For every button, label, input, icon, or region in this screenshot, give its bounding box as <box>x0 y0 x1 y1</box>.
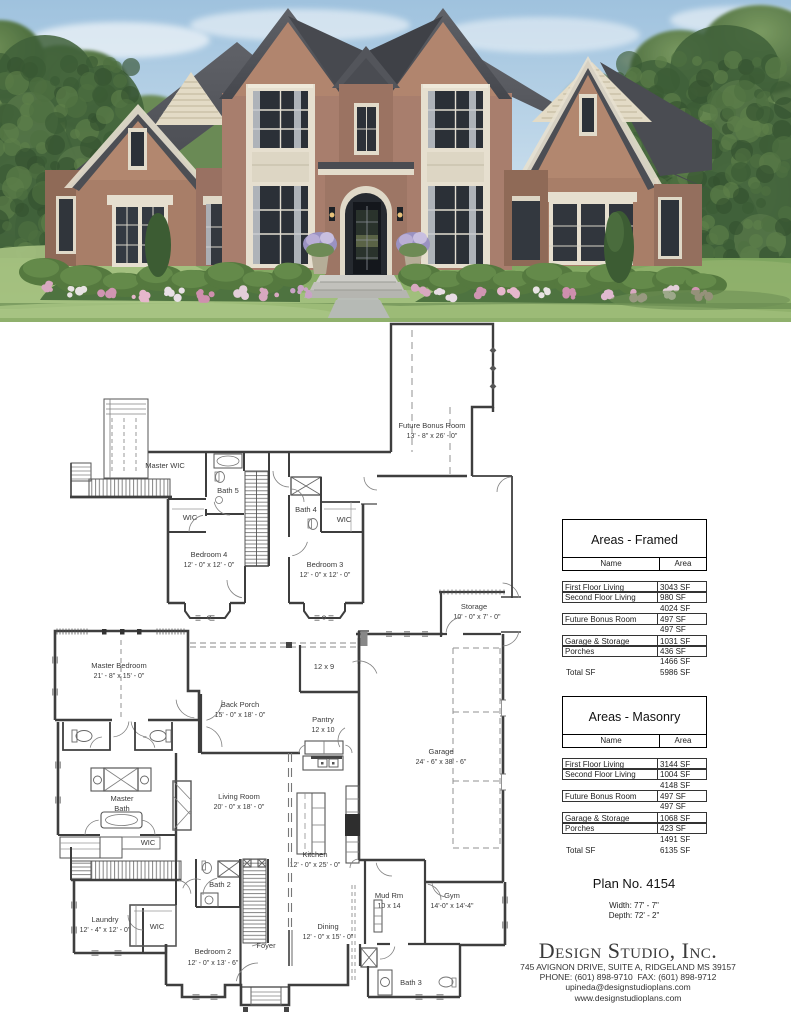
svg-text:12 x 10: 12 x 10 <box>312 727 335 734</box>
svg-text:12' - 0" x 12' - 0": 12' - 0" x 12' - 0" <box>184 562 235 569</box>
svg-text:12' - 0" x 13' - 6": 12' - 0" x 13' - 6" <box>188 960 239 967</box>
svg-text:Gym: Gym <box>444 891 460 900</box>
svg-text:12' - 4" x 12' - 0": 12' - 4" x 12' - 0" <box>80 927 131 934</box>
svg-text:24' - 6" x 38' - 6": 24' - 6" x 38' - 6" <box>416 759 467 766</box>
svg-text:12 x 9: 12 x 9 <box>314 662 334 671</box>
svg-text:14'-0" x 14'-4": 14'-0" x 14'-4" <box>430 903 474 910</box>
svg-text:Master Bedroom: Master Bedroom <box>91 661 146 670</box>
svg-text:12' - 0" x 15' - 0": 12' - 0" x 15' - 0" <box>303 934 354 941</box>
svg-text:Master: Master <box>111 794 134 803</box>
svg-text:15' - 0" x 18' - 0": 15' - 0" x 18' - 0" <box>215 712 266 719</box>
svg-text:Bedroom 2: Bedroom 2 <box>195 947 232 956</box>
svg-text:Foyer: Foyer <box>256 941 276 950</box>
svg-text:21' - 8" x 15' - 0": 21' - 8" x 15' - 0" <box>94 673 145 680</box>
svg-text:Bedroom 3: Bedroom 3 <box>307 560 344 569</box>
svg-text:20' - 0" x 18' - 0": 20' - 0" x 18' - 0" <box>214 804 265 811</box>
svg-text:WIC: WIC <box>337 515 352 524</box>
svg-text:Living Room: Living Room <box>218 792 260 801</box>
svg-text:WIC: WIC <box>141 838 156 847</box>
svg-text:Storage: Storage <box>461 602 487 611</box>
svg-text:WIC: WIC <box>150 922 165 931</box>
svg-text:Back Porch: Back Porch <box>221 700 259 709</box>
svg-text:10 x 14: 10 x 14 <box>378 903 401 910</box>
svg-text:Dining: Dining <box>317 922 338 931</box>
svg-text:Master WIC: Master WIC <box>145 461 185 470</box>
svg-text:Garage: Garage <box>428 747 453 756</box>
svg-text:10' - 0" x 7' - 0": 10' - 0" x 7' - 0" <box>454 614 501 621</box>
svg-text:12' - 0" x 12' - 0": 12' - 0" x 12' - 0" <box>300 572 351 579</box>
svg-text:WIC: WIC <box>183 513 198 522</box>
svg-text:Bath 5: Bath 5 <box>217 486 239 495</box>
svg-text:Bath 4: Bath 4 <box>295 505 317 514</box>
svg-text:Bedroom 4: Bedroom 4 <box>191 550 228 559</box>
svg-text:Kitchen: Kitchen <box>302 850 327 859</box>
svg-text:12' - 0" x 25' - 0": 12' - 0" x 25' - 0" <box>290 862 341 869</box>
svg-text:13' - 8" x 26' - 0": 13' - 8" x 26' - 0" <box>407 433 458 440</box>
svg-text:Future Bonus Room: Future Bonus Room <box>398 421 465 430</box>
svg-text:Laundry: Laundry <box>91 915 118 924</box>
svg-text:Bath 2: Bath 2 <box>209 880 231 889</box>
svg-text:Mud Rm: Mud Rm <box>375 891 403 900</box>
svg-text:Bath 3: Bath 3 <box>400 978 422 987</box>
svg-text:Pantry: Pantry <box>312 715 334 724</box>
